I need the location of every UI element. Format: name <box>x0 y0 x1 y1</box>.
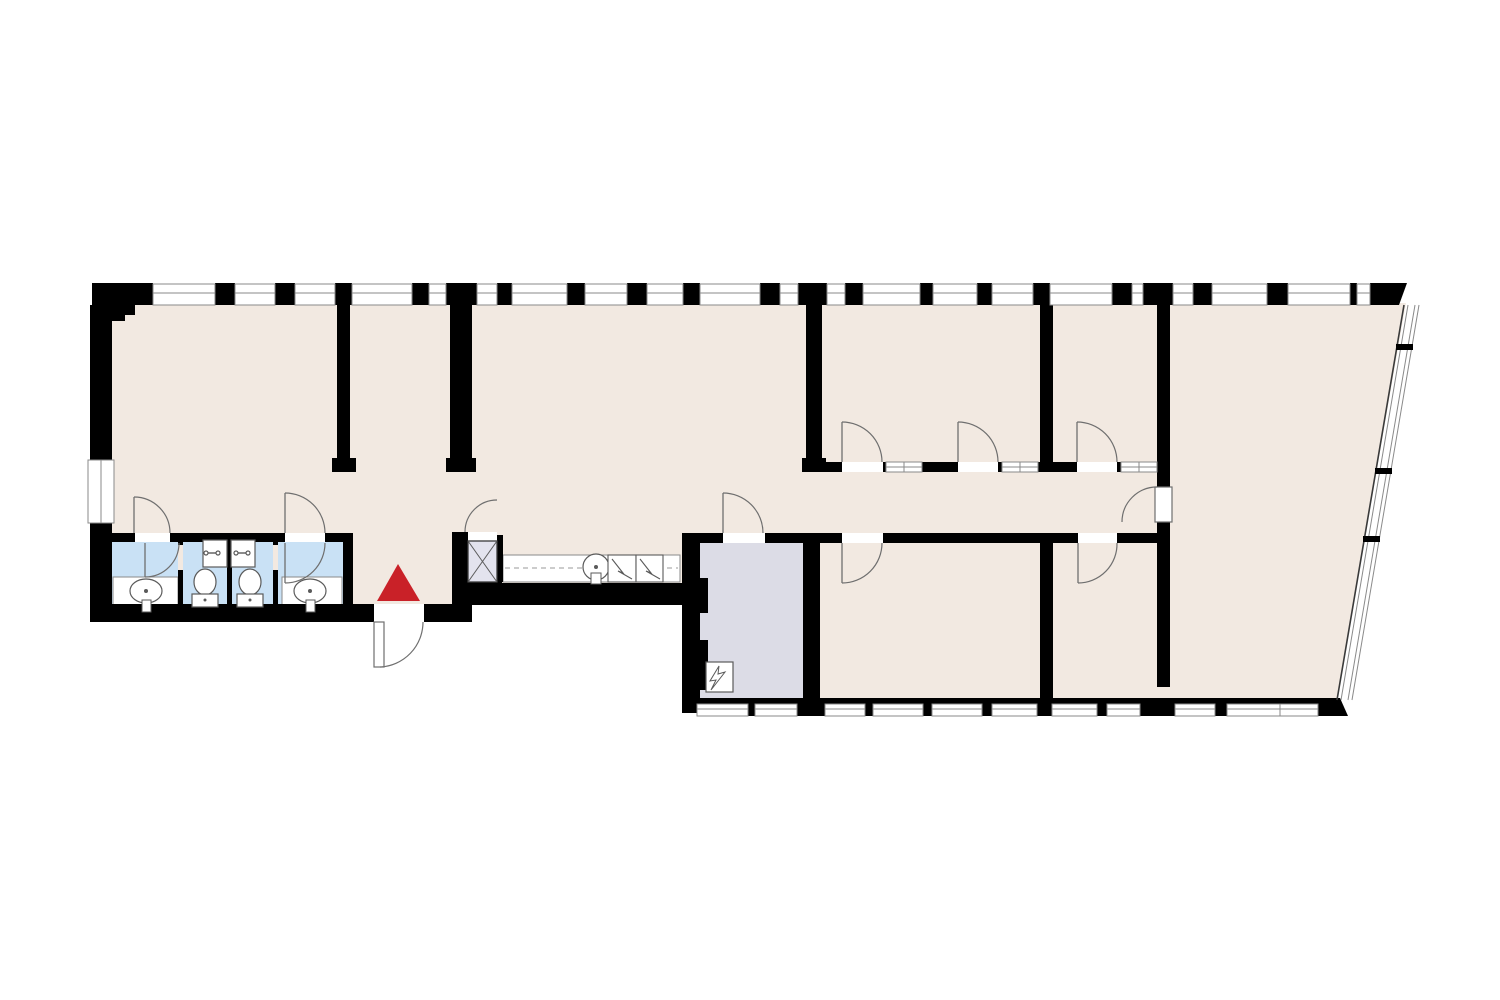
window <box>827 284 845 305</box>
bottom-right-corner-wedge <box>1316 698 1348 716</box>
facade-pier <box>683 283 700 305</box>
wall <box>332 458 356 472</box>
slant-wall-mullion <box>1363 536 1380 542</box>
window <box>352 284 412 305</box>
door-opening <box>842 462 883 472</box>
wc-2-toilet-button <box>249 599 252 602</box>
wall <box>1040 305 1053 462</box>
window <box>1280 704 1318 716</box>
window <box>153 284 215 305</box>
wall <box>343 533 353 605</box>
facade-pier <box>1215 698 1227 716</box>
window <box>992 284 1033 305</box>
facade-pier <box>627 283 647 305</box>
wall <box>273 542 278 545</box>
window <box>1050 284 1112 305</box>
wall <box>273 570 278 605</box>
facade-pier <box>1350 283 1357 305</box>
wall <box>452 580 502 605</box>
window <box>477 284 497 305</box>
window <box>1052 704 1097 716</box>
facade-pier <box>797 698 825 716</box>
window <box>825 704 865 716</box>
facade-pier <box>1143 283 1173 305</box>
window <box>1357 284 1370 305</box>
facade-pier <box>798 283 827 305</box>
window <box>697 704 748 716</box>
window <box>755 704 797 716</box>
wall <box>1117 533 1170 543</box>
kitchen-sink-tap <box>591 573 601 584</box>
door-opening <box>842 533 883 543</box>
wall <box>90 523 112 615</box>
window <box>295 284 335 305</box>
floor-plan-drawing <box>0 0 1500 1000</box>
wall <box>682 533 723 543</box>
electrical-box <box>706 662 733 692</box>
facade-pier <box>920 283 933 305</box>
wall <box>700 578 708 613</box>
window <box>1227 704 1280 716</box>
window <box>1288 284 1350 305</box>
facade-pier <box>92 283 153 305</box>
wall <box>1157 305 1170 487</box>
facade-pier <box>1112 283 1132 305</box>
wall <box>682 543 700 713</box>
bathroom-2-basin-drain <box>308 589 312 593</box>
entrance-door-swing-arc <box>380 622 423 667</box>
window <box>873 704 923 716</box>
facade-pier <box>446 283 477 305</box>
wc-2-sink-faucet-knob <box>234 551 238 555</box>
window <box>932 704 982 716</box>
wall <box>452 532 468 582</box>
window <box>1175 704 1215 716</box>
wall <box>497 540 503 582</box>
top-right-corner-wedge <box>1370 283 1407 305</box>
door-opening <box>285 533 325 542</box>
window <box>933 284 977 305</box>
facade-pier <box>335 283 352 305</box>
window <box>1107 704 1140 716</box>
facade-pier <box>865 698 873 716</box>
wall <box>337 305 350 458</box>
window <box>863 284 920 305</box>
slant-wall-mullion <box>1375 468 1392 474</box>
facade-pier <box>1033 283 1050 305</box>
wall <box>883 533 1078 543</box>
window <box>1173 284 1193 305</box>
window <box>700 284 760 305</box>
door-opening <box>374 604 424 622</box>
wc-2-sink-faucet-knob <box>246 551 250 555</box>
door-opening <box>468 532 497 541</box>
window <box>1212 284 1267 305</box>
floor-plan-page <box>0 0 1500 1000</box>
door-opening <box>1078 533 1117 543</box>
door-opening <box>135 533 170 542</box>
wc-1-toilet-bowl <box>194 569 216 595</box>
wc-1-sink-faucet-knob <box>204 551 208 555</box>
window <box>1132 284 1143 305</box>
facade-pier <box>567 283 585 305</box>
wall <box>922 462 958 472</box>
kitchen-sink-drain <box>594 565 598 569</box>
facade-pier <box>1193 283 1212 305</box>
facade-pier <box>215 283 235 305</box>
wall <box>1117 462 1121 472</box>
facade-pier <box>923 698 932 716</box>
wall <box>1040 533 1053 700</box>
facade-pier <box>1267 283 1288 305</box>
window <box>780 284 798 305</box>
window <box>235 284 275 305</box>
wall <box>178 570 183 605</box>
wall <box>1038 462 1077 472</box>
facade-pier <box>497 283 512 305</box>
facade-pier <box>748 698 755 716</box>
window <box>647 284 683 305</box>
wall <box>446 458 476 472</box>
corridor-end-door-leaf <box>1155 487 1172 522</box>
facade-pier <box>760 283 780 305</box>
wc-1-sink-faucet-knob <box>216 551 220 555</box>
door-opening <box>723 533 765 543</box>
wc-1-toilet-button <box>204 599 207 602</box>
wall <box>806 305 822 458</box>
wall <box>822 462 842 472</box>
window <box>585 284 627 305</box>
facade-pier <box>845 283 863 305</box>
wall <box>1157 522 1170 687</box>
window <box>992 704 1037 716</box>
facade-pier <box>977 283 992 305</box>
facade-pier <box>1037 698 1052 716</box>
slant-wall-mullion <box>1396 344 1413 350</box>
wall <box>998 462 1002 472</box>
wall <box>450 305 472 458</box>
bathroom-1-basin-drain <box>144 589 148 593</box>
door-opening <box>1077 462 1117 472</box>
wall <box>765 533 842 543</box>
door-opening <box>958 462 998 472</box>
window <box>512 284 567 305</box>
facade-pier <box>412 283 429 305</box>
facade-pier <box>275 283 295 305</box>
facade-pier <box>1097 698 1107 716</box>
facade-pier <box>1140 698 1175 716</box>
facade-pier <box>982 698 992 716</box>
entrance-door-leaf <box>374 622 384 667</box>
bathroom-1-basin-tap <box>142 600 151 612</box>
wc-2-toilet-bowl <box>239 569 261 595</box>
wall <box>803 543 820 700</box>
bathroom-2-basin-tap <box>306 600 315 612</box>
window <box>429 284 446 305</box>
wall <box>110 533 135 542</box>
wall <box>90 305 112 460</box>
